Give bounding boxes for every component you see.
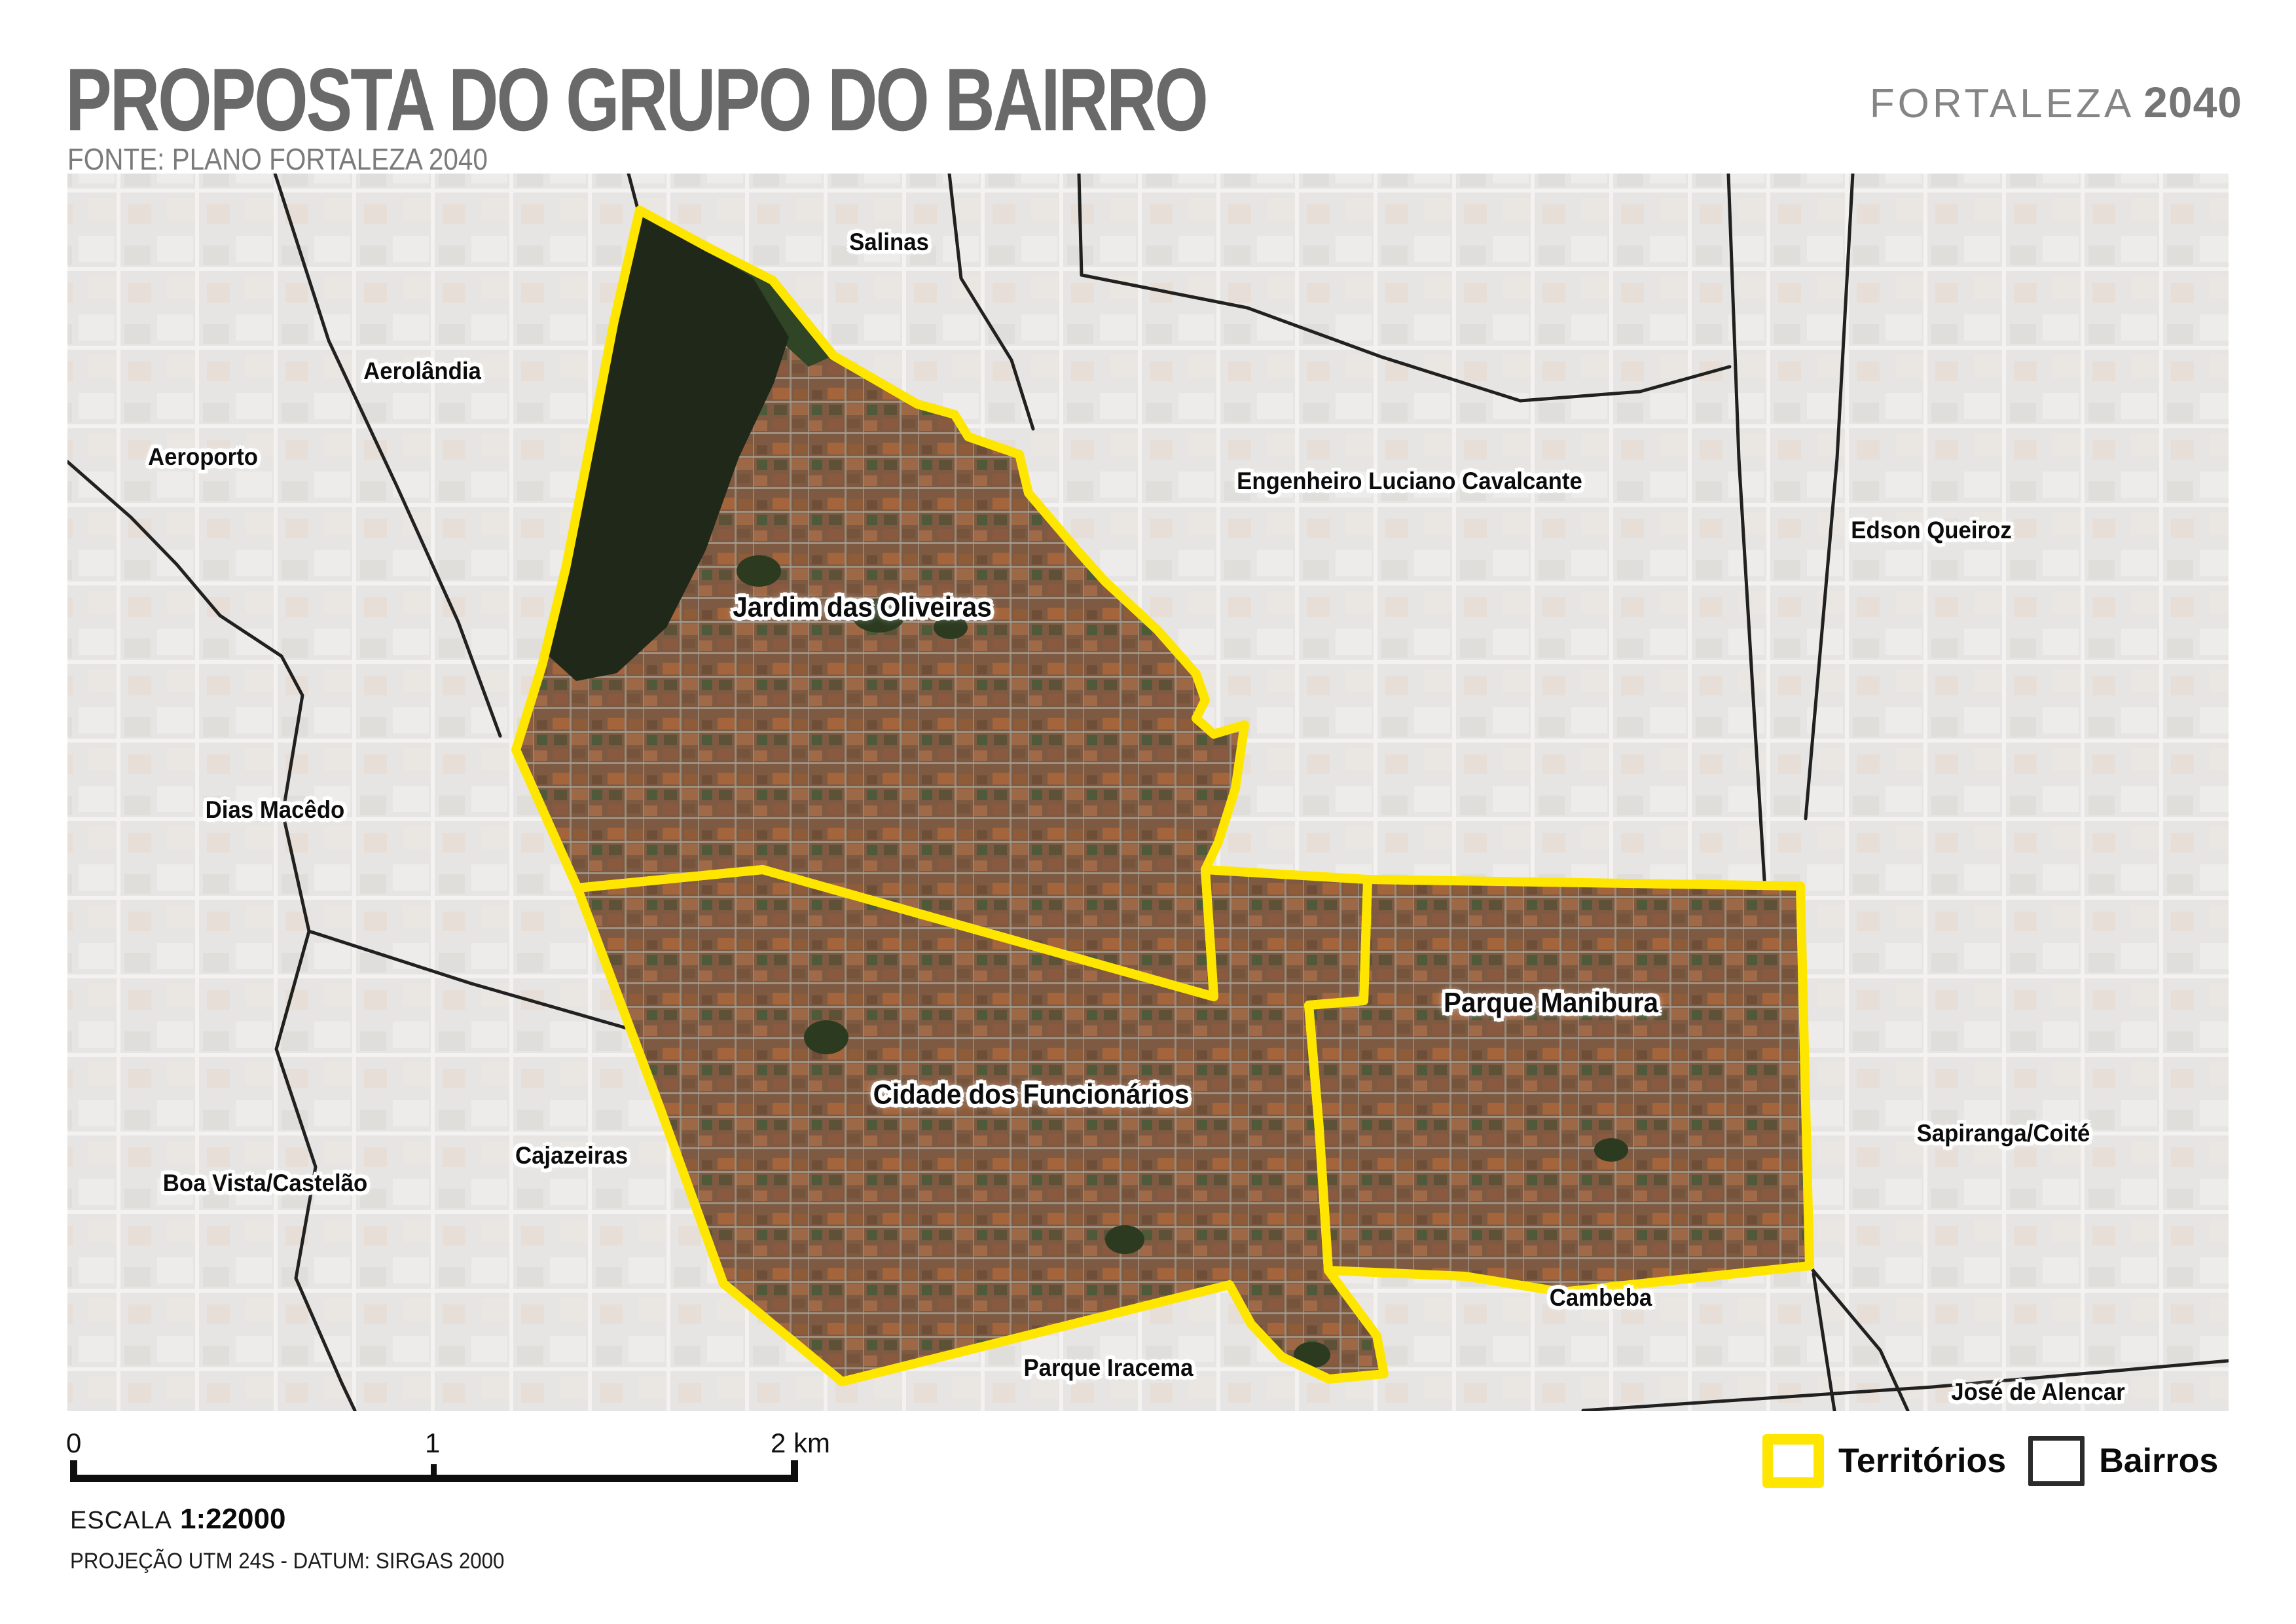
scale-text: ESCALA1:22000 [70,1503,285,1536]
scalebar-end-tick-right [791,1460,798,1482]
scalebar-end-tick-left [70,1460,77,1482]
legend: Territórios Bairros [1762,1434,2218,1488]
bairros-swatch [2028,1436,2085,1486]
bairro-label-jose-de-alencar: José de Alencar [1951,1378,2124,1406]
map-labels: SalinasAerolândiaAeroportoEngenheiro Luc… [67,174,2229,1411]
territory-label-parque-manibura: Parque Manibura [1444,987,1658,1020]
fortaleza-2040-logo: FORTALEZA2040 [1870,77,2242,127]
scalebar: 0 1 2 km [70,1428,803,1500]
logo-year: 2040 [2143,78,2242,126]
bairro-label-edson-queiroz: Edson Queiroz [1851,517,2011,544]
territories-label: Territórios [1838,1441,2006,1481]
bairro-label-salinas: Salinas [849,229,929,256]
page-source: FONTE: PLANO FORTALEZA 2040 [67,141,488,177]
logo-name: FORTALEZA [1870,81,2134,126]
territory-label-cidade-dos-funcionarios: Cidade dos Funcionários [873,1079,1190,1111]
scale-label: ESCALA [70,1507,172,1534]
scalebar-tick-1: 1 [425,1428,440,1459]
bairro-label-sapiranga-coite: Sapiranga/Coité [1917,1120,2090,1147]
territories-swatch [1762,1434,1824,1488]
scalebar-tick-2: 2 km [771,1428,830,1459]
bairros-label: Bairros [2099,1441,2218,1481]
scalebar-tick-0: 0 [66,1428,81,1459]
bairro-label-dias-macedo: Dias Macêdo [206,796,345,824]
bairro-label-aeroporto: Aeroporto [148,443,258,471]
map-canvas: SalinasAerolândiaAeroportoEngenheiro Luc… [67,174,2229,1411]
projection-text: PROJEÇÃO UTM 24S - DATUM: SIRGAS 2000 [70,1549,504,1574]
bairro-label-cambeba: Cambeba [1550,1284,1652,1312]
scalebar-mid-tick [431,1464,437,1482]
bairro-label-cajazeiras: Cajazeiras [515,1142,628,1170]
bairro-label-boa-vista-castelao: Boa Vista/Castelão [163,1170,368,1197]
page-title: PROPOSTA DO GRUPO DO BAIRRO [65,55,1207,144]
bairro-label-engenheiro-luciano-cavalcante: Engenheiro Luciano Cavalcante [1237,468,1582,495]
bairro-label-parque-iracema: Parque Iracema [1023,1354,1193,1382]
bairro-label-aerolandia: Aerolândia [363,358,481,385]
scale-value: 1:22000 [180,1503,285,1535]
poster-page: PROPOSTA DO GRUPO DO BAIRRO FONTE: PLANO… [0,0,2296,1624]
scalebar-bar [70,1475,798,1482]
territory-label-jardim-das-oliveiras: Jardim das Oliveiras [733,592,991,624]
